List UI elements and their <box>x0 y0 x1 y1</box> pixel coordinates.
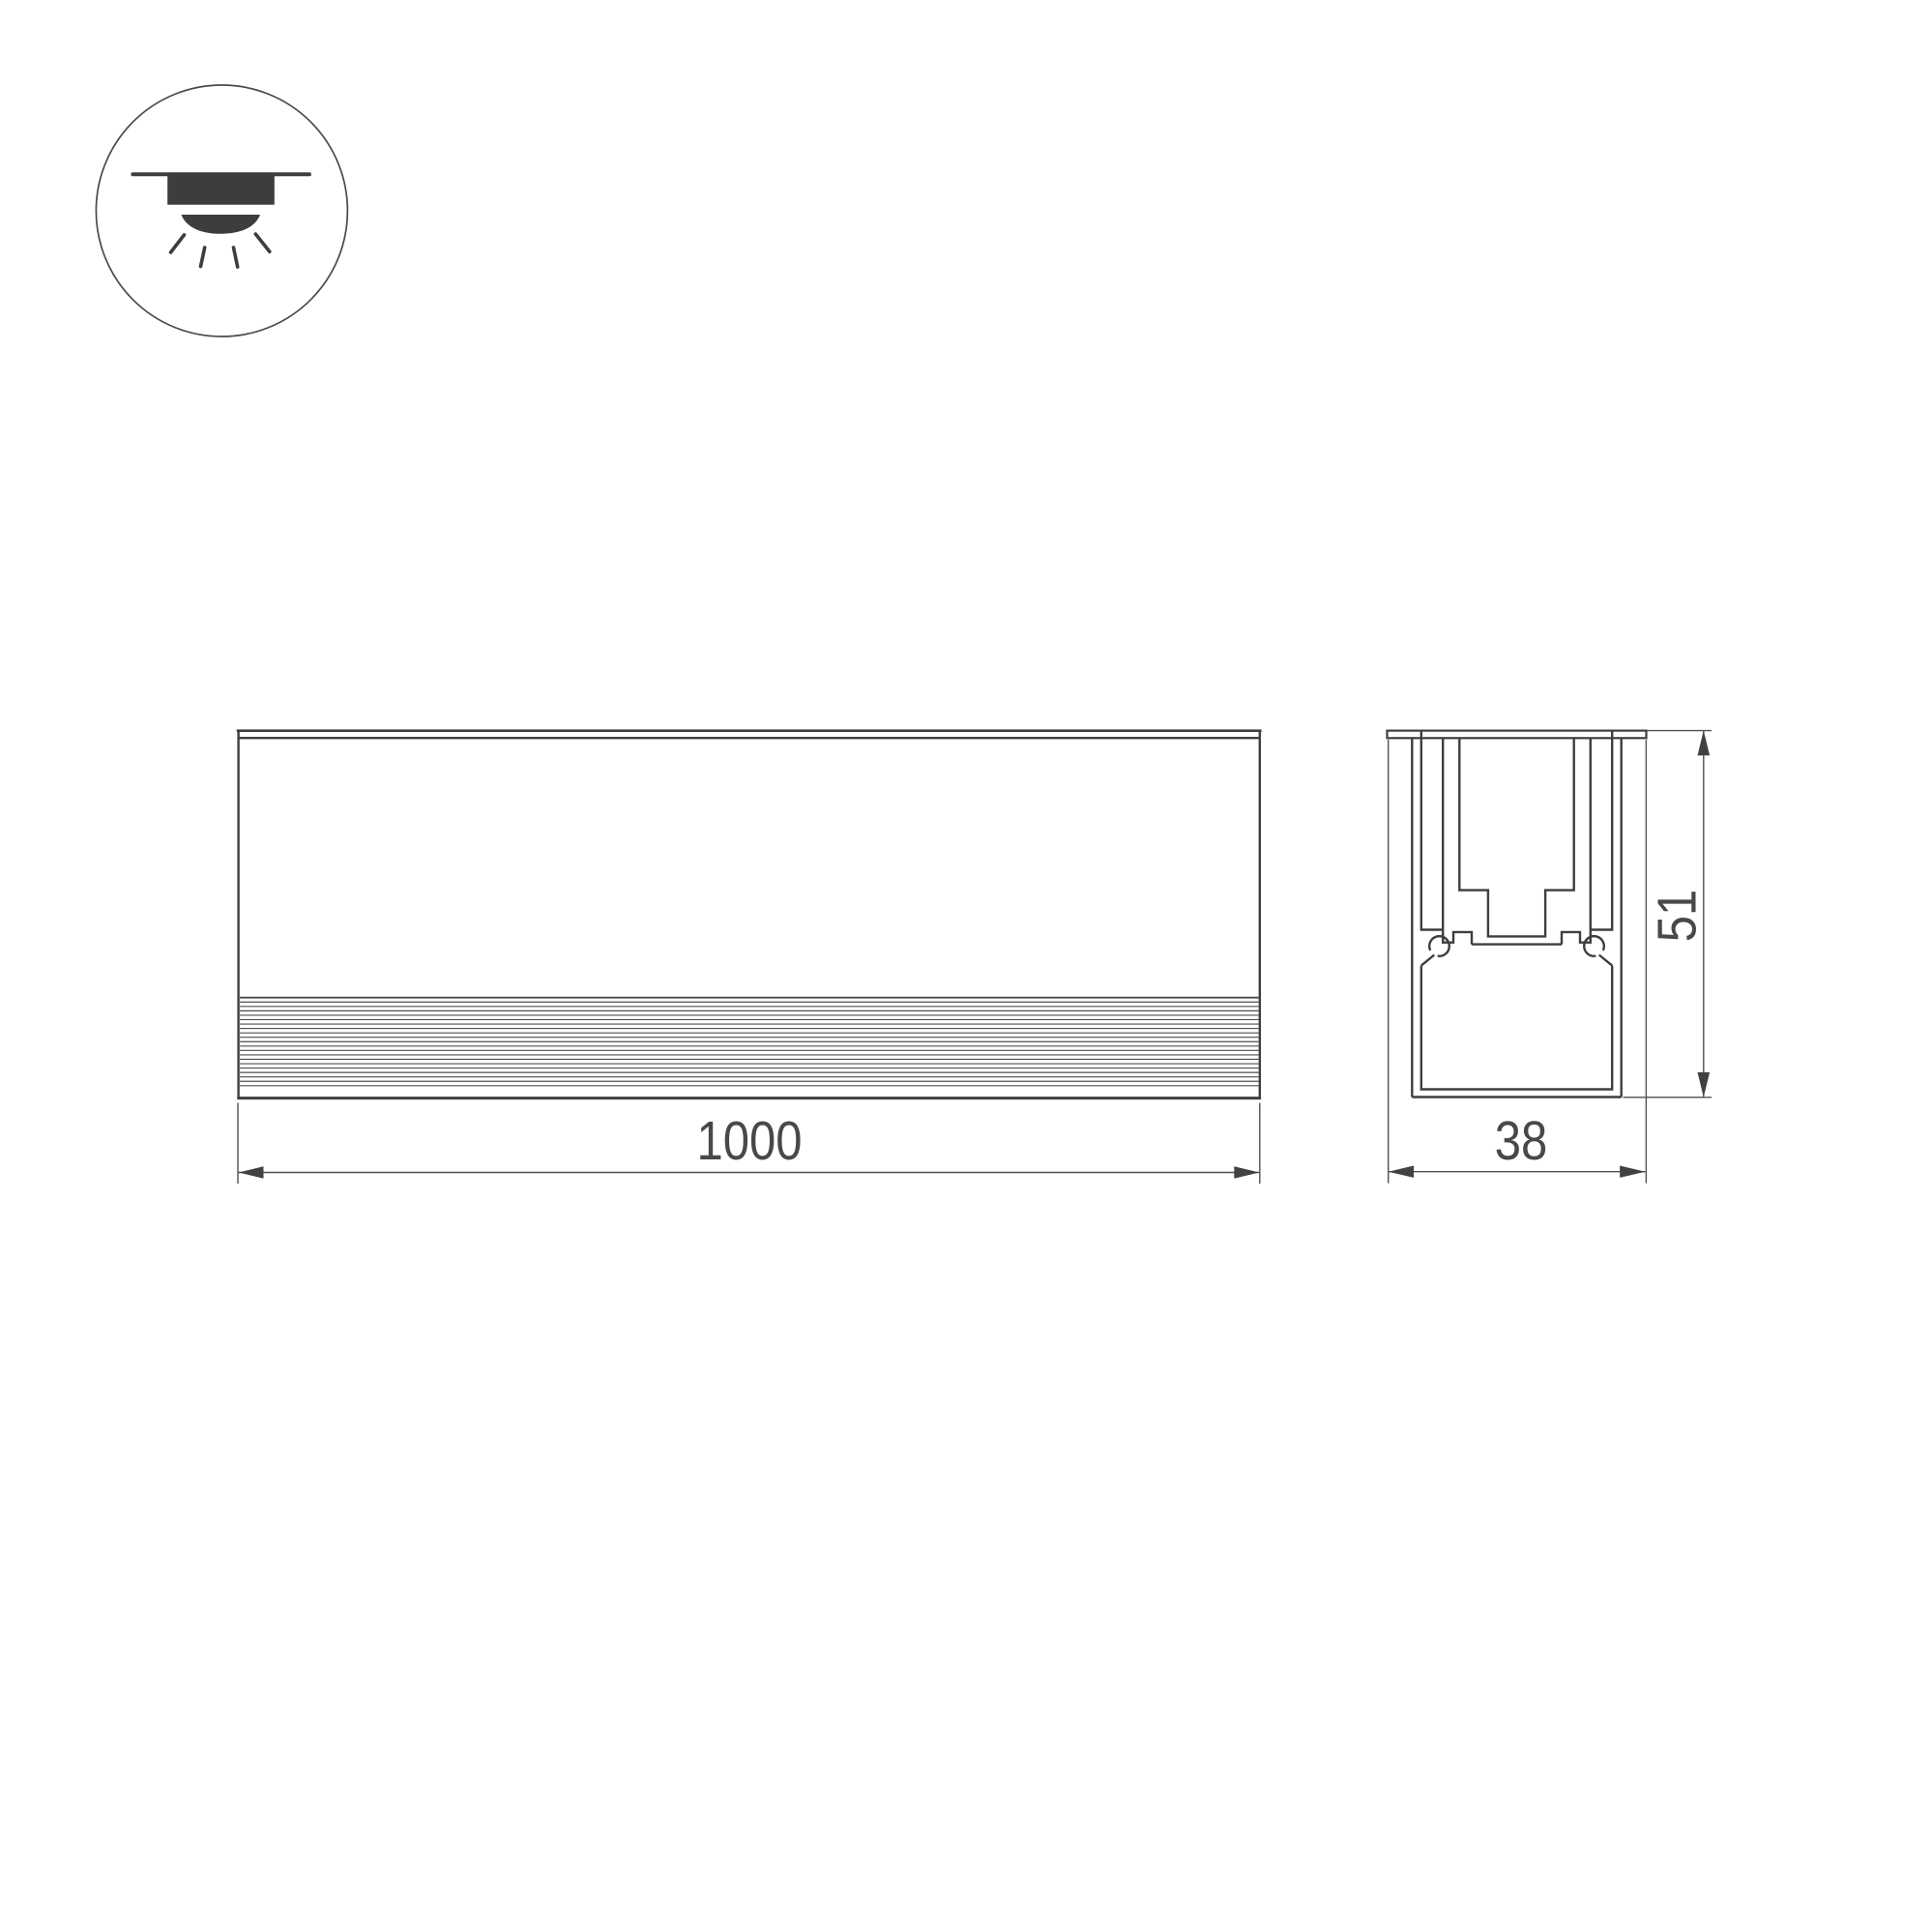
svg-text:38: 38 <box>1495 1111 1548 1172</box>
svg-text:51: 51 <box>1647 890 1708 943</box>
svg-text:1000: 1000 <box>696 1111 802 1172</box>
